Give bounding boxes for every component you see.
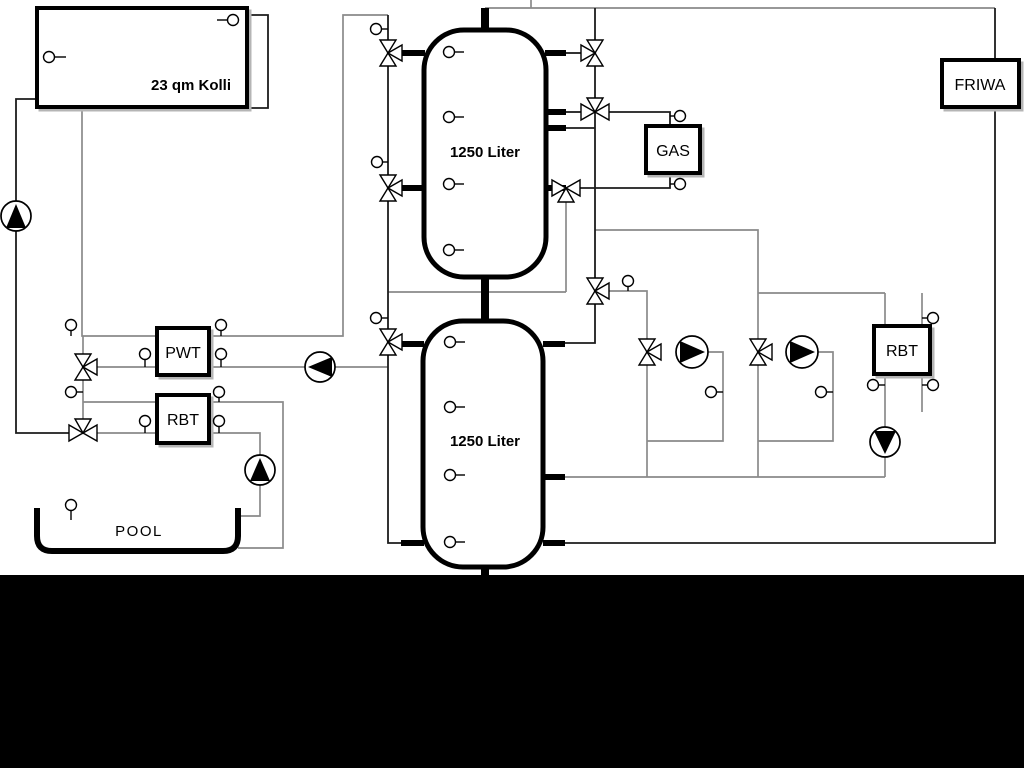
sensor-icon bbox=[444, 47, 455, 58]
friwa-label: FRIWA bbox=[955, 77, 1006, 94]
valve-mixer-2-icon bbox=[750, 339, 772, 365]
tank-top-label: 1250 Liter bbox=[450, 144, 520, 161]
hydraulic-diagram: 1250 Liter 1250 Liter 23 qm Kolli PWT RB… bbox=[0, 0, 1024, 768]
heating-pump-1-icon bbox=[676, 336, 708, 368]
collector-label: 23 qm Kolli bbox=[151, 77, 231, 94]
friwa-box: FRIWA bbox=[942, 60, 1022, 110]
pwt-box: PWT bbox=[157, 328, 212, 378]
tank-bottom-label: 1250 Liter bbox=[450, 433, 520, 450]
sensor-icon bbox=[228, 15, 239, 26]
buffer-tank-top: 1250 Liter bbox=[402, 8, 566, 323]
pool-pump-icon bbox=[245, 455, 275, 485]
sensor-icon bbox=[928, 380, 939, 391]
rbt-right-box: RBT bbox=[874, 326, 933, 377]
sensor-icon bbox=[371, 313, 382, 324]
sensor-icon bbox=[816, 387, 827, 398]
sensor-icon bbox=[216, 349, 227, 360]
sensor-icon bbox=[706, 387, 717, 398]
sensor-icon bbox=[66, 320, 77, 331]
pool-basin: POOL bbox=[37, 508, 238, 551]
sensor-icon bbox=[445, 537, 456, 548]
sensor-icon bbox=[444, 112, 455, 123]
rbt-pool-label: RBT bbox=[167, 412, 199, 429]
sensor-icon bbox=[140, 416, 151, 427]
sensor-icon bbox=[445, 402, 456, 413]
valve-pool-icon bbox=[69, 419, 97, 441]
sensor-icon bbox=[445, 337, 456, 348]
pwt-pump-icon bbox=[305, 352, 335, 382]
schematic-page: 1250 Liter 1250 Liter 23 qm Kolli PWT RB… bbox=[0, 0, 1024, 768]
sensor-icon bbox=[44, 52, 55, 63]
collector-box: 23 qm Kolli bbox=[37, 8, 250, 110]
gas-boiler-box: GAS bbox=[646, 126, 703, 176]
valve-tank1-right-top-icon bbox=[581, 40, 603, 66]
sensor-icon bbox=[444, 179, 455, 190]
valve-tank1-left-mid-icon bbox=[380, 175, 402, 201]
valve-gas-return-icon bbox=[552, 180, 580, 202]
sensor-icon bbox=[140, 349, 151, 360]
footer-black-bar bbox=[0, 575, 1024, 768]
valve-tank1-left-top-icon bbox=[380, 40, 402, 66]
buffer-tank-bottom: 1250 Liter bbox=[401, 321, 565, 576]
sensor-icon bbox=[445, 470, 456, 481]
sensor-icon bbox=[623, 276, 634, 287]
pool-label: POOL bbox=[115, 523, 163, 540]
rbt-right-pump-icon bbox=[870, 427, 900, 457]
sensor-icon bbox=[868, 380, 879, 391]
sensor-icon bbox=[371, 24, 382, 35]
sensor-icon bbox=[444, 245, 455, 256]
sensor-icon bbox=[372, 157, 383, 168]
rbt-right-label: RBT bbox=[886, 343, 918, 360]
pwt-label: PWT bbox=[165, 345, 201, 362]
sensor-icon bbox=[216, 320, 227, 331]
sensor-icon bbox=[214, 416, 225, 427]
sensor-icon bbox=[66, 387, 77, 398]
sensor-icon bbox=[675, 111, 686, 122]
sensor-icon bbox=[928, 313, 939, 324]
valve-mixer-1-icon bbox=[639, 339, 661, 365]
rbt-pool-box: RBT bbox=[157, 395, 212, 446]
gas-label: GAS bbox=[656, 143, 690, 160]
valve-heating-supply-icon bbox=[587, 278, 609, 304]
tank-link-stub bbox=[481, 275, 489, 323]
sensor-icon bbox=[675, 179, 686, 190]
solar-pump-icon bbox=[1, 201, 31, 231]
valve-tank2-left-icon bbox=[380, 329, 402, 355]
sensor-icon bbox=[66, 500, 77, 511]
heating-pump-2-icon bbox=[786, 336, 818, 368]
sensor-icon bbox=[214, 387, 225, 398]
valve-pwt-icon bbox=[75, 354, 97, 380]
